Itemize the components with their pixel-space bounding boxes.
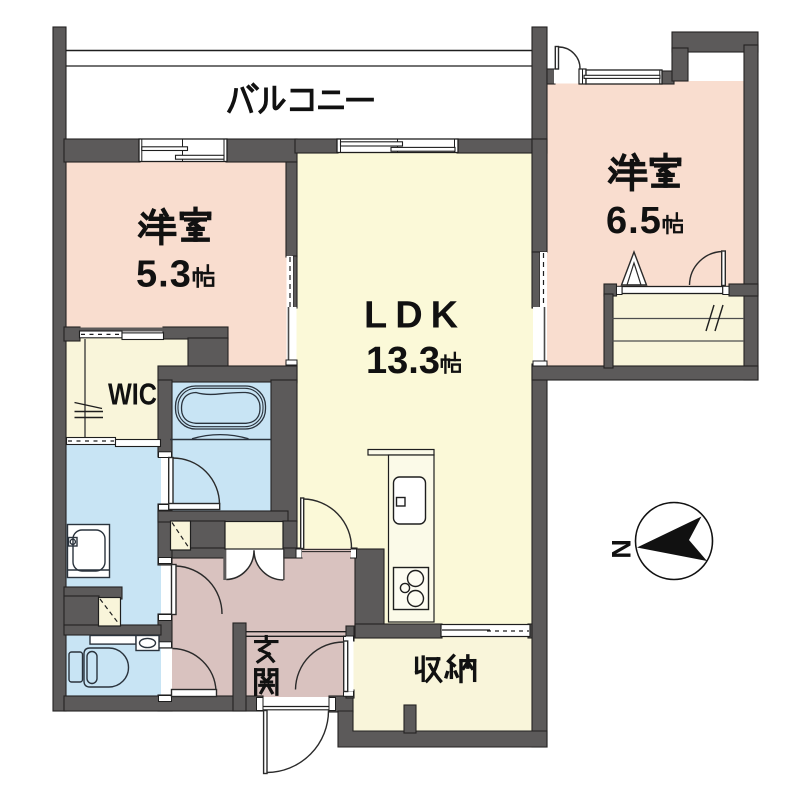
svg-text:LDK: LDK <box>364 295 466 337</box>
svg-text:13.3: 13.3 <box>366 340 440 382</box>
svg-text:5.3: 5.3 <box>136 254 192 296</box>
svg-text:WIC: WIC <box>108 377 157 412</box>
svg-text:6.5: 6.5 <box>606 200 662 242</box>
svg-text:N: N <box>606 539 636 559</box>
